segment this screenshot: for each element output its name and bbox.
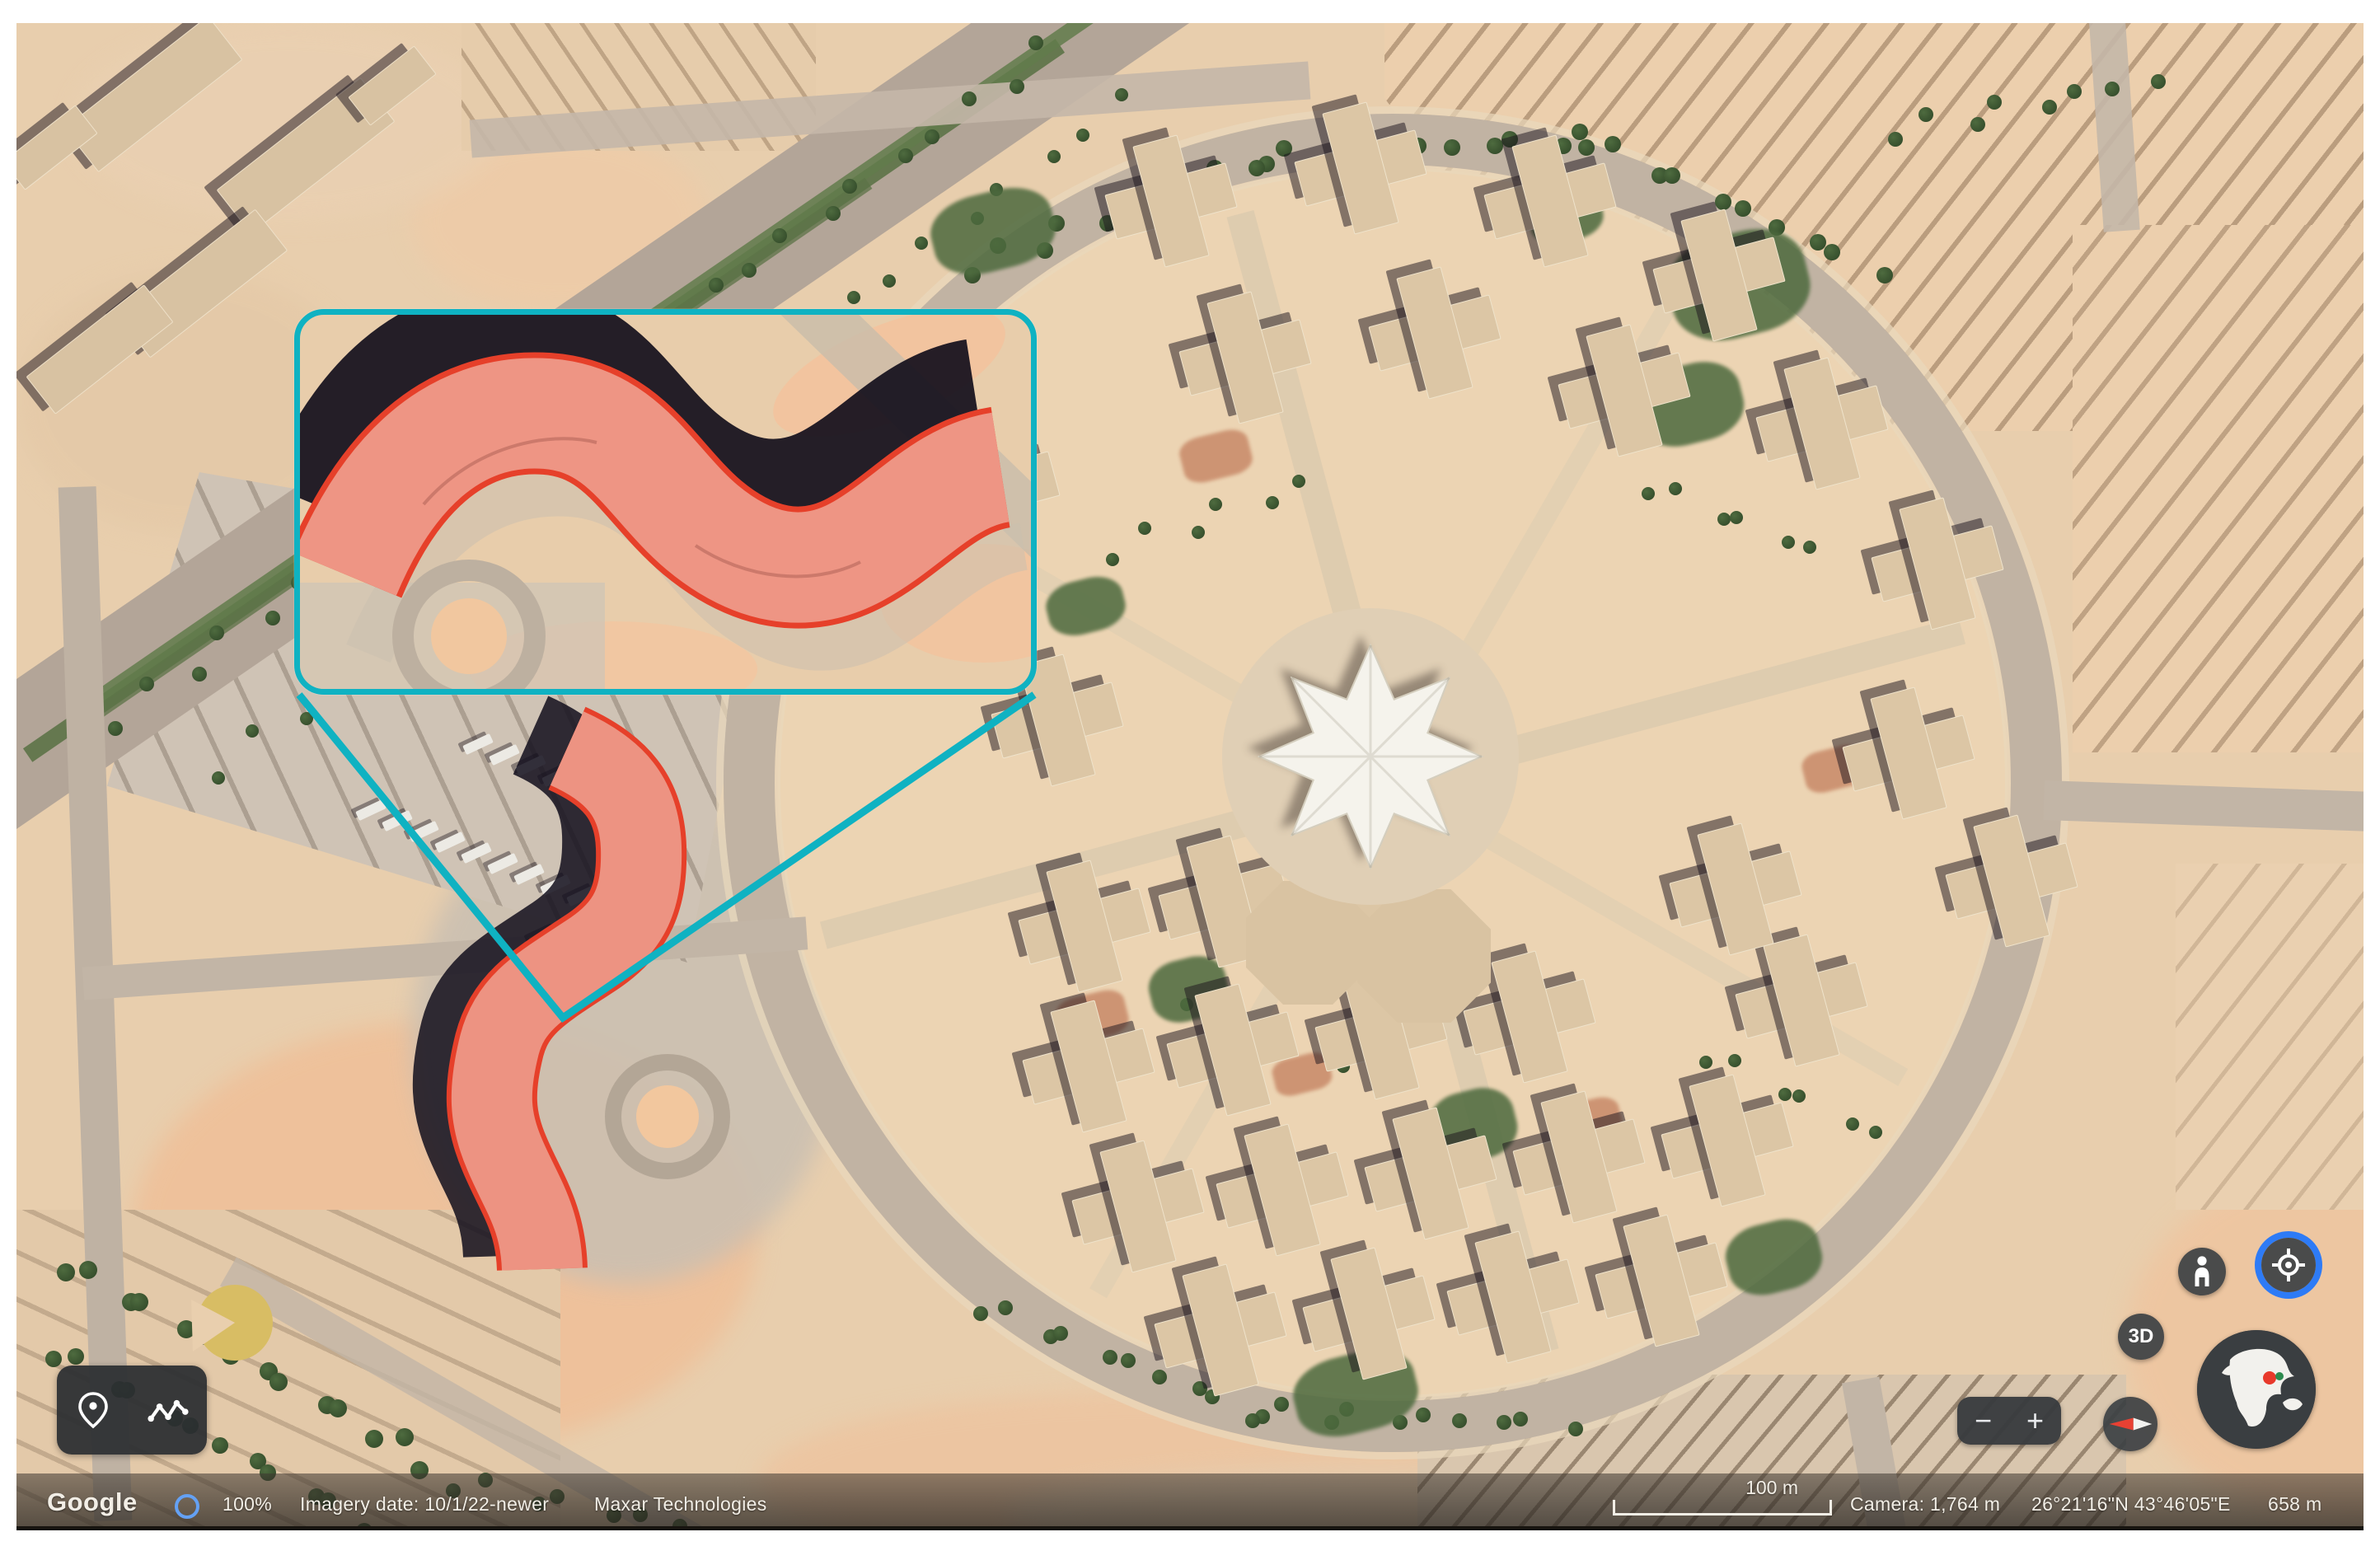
tree [883,274,896,288]
tree [130,1293,148,1311]
tree [1605,136,1621,152]
compass-icon [2105,1398,2156,1450]
my-location-icon [2270,1247,2307,1283]
tree [1416,1408,1431,1422]
callout-content [300,315,1031,689]
tree [1276,140,1292,157]
tree [269,1373,288,1391]
tree [45,1351,62,1367]
callout-zoom-box [294,309,1037,695]
imagery-provider: Maxar Technologies [594,1493,767,1516]
tree [79,1261,97,1279]
tree [265,611,280,625]
tree [1970,117,1985,132]
tree [1245,1413,1260,1428]
3d-label: 3D [2129,1325,2154,1348]
location-marker-dot [2263,1371,2276,1384]
figure-frame: − + 3D Google [0,0,2380,1546]
tree [1192,526,1205,539]
pegman-icon [2188,1255,2216,1288]
my-location-button[interactable] [2261,1238,2316,1292]
imagery-date: Imagery date: 10/1/22-newer [300,1493,549,1516]
parking-lot [2073,225,2364,752]
scale-label: 100 m [1745,1477,1798,1499]
octagon-building [1246,881,1370,1005]
tree [1792,1089,1806,1103]
coordinates: 26°21'16"N 43°46'05"E [2031,1493,2231,1516]
tree [973,1306,988,1321]
status-bar: Google 100% Imagery date: 10/1/22-newer … [16,1473,2364,1530]
path-measure-icon[interactable] [148,1394,189,1427]
tree [1869,1126,1882,1139]
tree [1497,1415,1511,1430]
tree [998,1300,1013,1315]
tree [772,228,787,243]
tree [1888,132,1903,147]
tree [1987,95,2002,110]
tree [246,724,259,738]
terrain-shape [2043,780,2364,832]
3d-toggle-button[interactable]: 3D [2118,1314,2164,1360]
tree [1572,124,1588,140]
tree [365,1430,383,1448]
parking-lot [2176,864,2364,1210]
tree [1699,1056,1712,1069]
stream-progress-icon [175,1494,199,1519]
tree [1487,138,1503,154]
globe-overview-button[interactable] [2197,1330,2316,1449]
tree [1730,511,1743,524]
tree [1106,553,1119,566]
tree [1735,200,1751,217]
tree [1249,160,1265,176]
tree [1778,1088,1792,1101]
zoom-out-button[interactable]: − [1966,1406,2000,1436]
satellite-map-viewport[interactable]: − + 3D Google [16,23,2364,1530]
camera-altitude: Camera: 1,764 m [1850,1493,2000,1516]
tree [212,1437,228,1454]
tree [57,1263,75,1281]
map-tools-toolbar [57,1366,207,1455]
tree [212,771,225,785]
tree [1803,541,1816,554]
stream-progress-value: 100% [223,1493,272,1516]
tree [1209,498,1222,511]
tree [1452,1413,1467,1428]
tree [193,1327,211,1345]
pegman-button[interactable] [2178,1248,2226,1295]
tree [898,148,913,163]
tree [847,291,860,304]
satellite-terrain [16,23,2364,1530]
compass-button[interactable] [2103,1397,2157,1451]
terrain-elevation: 658 m [2268,1493,2321,1516]
google-logo: Google [47,1487,138,1517]
tree [1103,1350,1117,1365]
octagon-building [1357,889,1491,1023]
tree [1076,129,1089,142]
zoom-controls: − + [1957,1397,2061,1445]
zoom-in-button[interactable]: + [2018,1406,2052,1436]
location-pin-icon[interactable] [76,1390,110,1430]
tree [915,237,928,250]
callout-building [321,345,1000,576]
tree [2105,82,2120,96]
tree [209,625,224,640]
map-scale-bar: 100 m [1613,1500,1832,1516]
tree [108,721,123,736]
tree [1578,139,1595,156]
globe-icon [2197,1330,2316,1449]
tree [1717,513,1731,526]
tree [962,91,977,106]
tree [826,206,841,221]
tree [1292,475,1305,488]
tree [192,667,207,682]
tree [1642,487,1655,500]
tree [1664,167,1680,184]
tree [1047,150,1061,163]
